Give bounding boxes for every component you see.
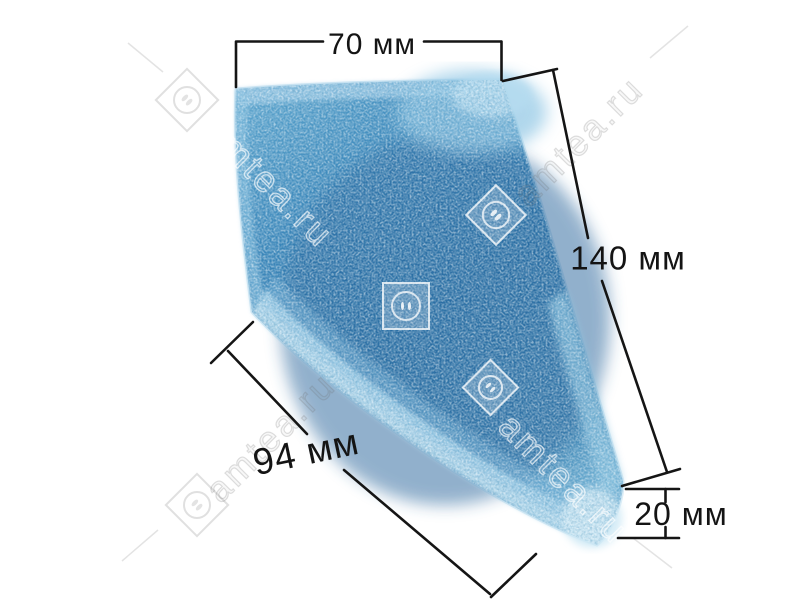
dim-label-70mm: 70 мм	[328, 30, 416, 60]
product-photo-canvas: amtea.ru amtea.ru amtea.ru amtea.ru	[0, 0, 800, 606]
dim-140-lines	[503, 69, 680, 486]
dim-label-140mm: 140 мм	[570, 242, 686, 275]
dim-label-20mm: 20 мм	[634, 498, 727, 530]
